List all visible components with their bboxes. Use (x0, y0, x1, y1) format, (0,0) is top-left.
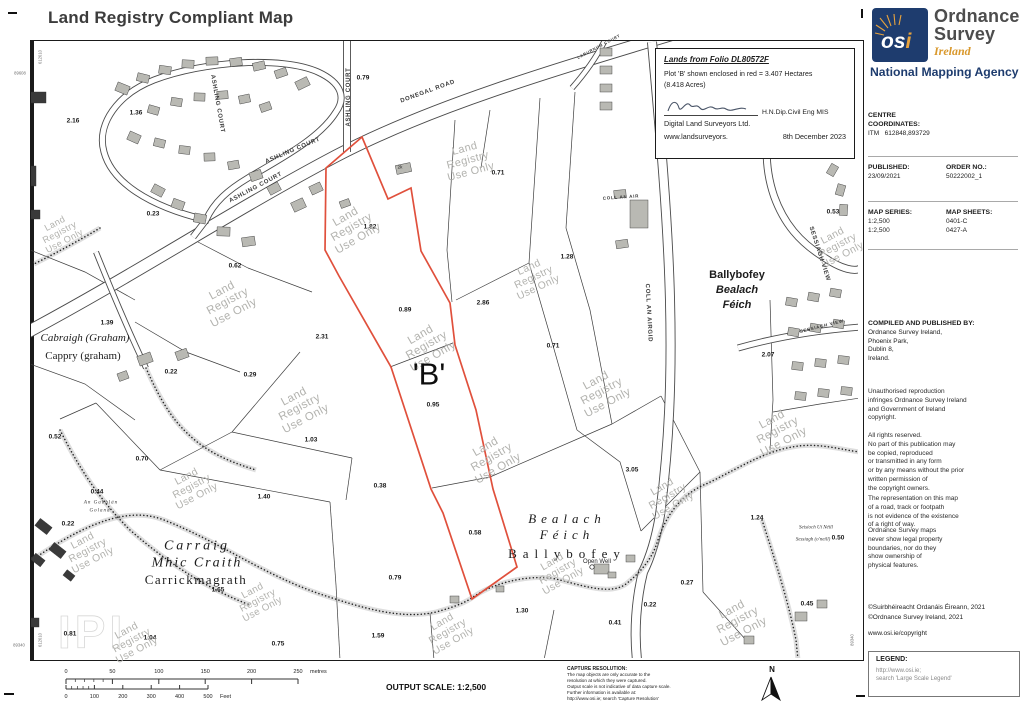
map-sheets-block: MAP SHEETS: 0401-C 0427-A (946, 209, 992, 235)
sidebar: osi Ordnance Survey Ireland National Map… (868, 8, 1020, 703)
folio-info-box: Lands from Folio DL80572F Plot 'B' shown… (655, 48, 855, 159)
signature-icon (664, 97, 758, 116)
north-label: N (764, 665, 780, 674)
divider (868, 249, 1018, 250)
grid-edge-label: 89340 (13, 644, 25, 649)
surveyor-website: www.landsurveyors. (664, 132, 728, 141)
svg-text:osi: osi (881, 30, 913, 53)
centre-coordinates: CENTRE COORDINATES: ITM 612848,893729 (868, 112, 930, 138)
svg-text:Feet: Feet (220, 694, 231, 700)
qualification: H.N.Dip.Civil Eng MIS (762, 109, 828, 116)
page-title: Land Registry Compliant Map (48, 8, 293, 28)
svg-text:50: 50 (109, 669, 115, 675)
corner-mark (861, 9, 863, 18)
svg-text:100: 100 (154, 669, 163, 675)
svg-text:150: 150 (201, 669, 210, 675)
svg-text:0: 0 (64, 694, 67, 700)
svg-text:200: 200 (247, 669, 256, 675)
svg-text:200: 200 (118, 694, 127, 700)
folio-title: Lands from Folio DL80572F (664, 55, 846, 64)
corner-mark (8, 12, 17, 14)
osi-os: os (881, 30, 906, 53)
svg-text:500: 500 (203, 694, 212, 700)
scale-bar: 050100150200250metres0100200300400500Fee… (54, 664, 384, 702)
svg-text:metres: metres (310, 669, 327, 675)
grid-edge-label: 89608 (14, 72, 26, 77)
north-arrow-icon (758, 676, 786, 702)
svg-text:100: 100 (90, 694, 99, 700)
svg-text:300: 300 (147, 694, 156, 700)
copyright-para-2: All rights reserved. No part of this pub… (868, 432, 964, 493)
capture-resolution-block: CAPTURE RESOLUTION: The map objects are … (567, 666, 752, 702)
order-no-block: ORDER NO.: 50222002_1 (946, 164, 987, 182)
published-block: PUBLISHED: 23/09/2021 (868, 164, 910, 182)
corner-mark (856, 695, 865, 697)
plot-description: Plot 'B' shown enclosed in red = 3.407 H… (664, 70, 846, 91)
osi-tagline: National Mapping Agency (870, 65, 1019, 79)
osi-logo: osi (872, 8, 928, 62)
divider (868, 156, 1018, 157)
copyright-line-1: ©Suirbhéireacht Ordanáis Éireann, 2021 (868, 604, 985, 613)
surveyor-company: Digital Land Surveyors Ltd. (664, 119, 846, 128)
copyright-line-2: ©Ordnance Survey Ireland, 2021 (868, 614, 963, 623)
copyright-url: www.osi.ie/copyright (868, 630, 927, 639)
signature-row: H.N.Dip.Civil Eng MIS (664, 97, 846, 116)
survey-date: 8th December 2023 (783, 132, 846, 141)
divider (868, 201, 1018, 202)
osi-i: i (906, 30, 913, 53)
legend-link: http://www.osi.ie;search 'Large Scale Le… (876, 667, 1012, 684)
legend-heading: LEGEND: (876, 656, 1012, 663)
output-scale-label: OUTPUT SCALE: 1:2,500 (386, 682, 486, 692)
svg-text:250: 250 (293, 669, 302, 675)
corner-mark (4, 693, 14, 695)
rights-of-way-para: The representation on this map of a road… (868, 495, 959, 530)
legend-box: LEGEND: http://www.osi.ie;search 'Large … (868, 651, 1020, 697)
copyright-para-1: Unauthorised reproduction infringes Ordn… (868, 388, 967, 423)
compiled-by-block: COMPILED AND PUBLISHED BY: Ordnance Surv… (868, 320, 975, 364)
svg-text:400: 400 (175, 694, 184, 700)
map-series-block: MAP SERIES: 1:2,500 1:2,500 (868, 209, 912, 235)
osi-wordmark: Ordnance Survey Ireland (934, 7, 1020, 59)
boundaries-para: Ordnance Survey maps never show legal pr… (868, 527, 942, 571)
plot-b-label: 'B' (413, 357, 446, 390)
svg-text:0: 0 (64, 669, 67, 675)
